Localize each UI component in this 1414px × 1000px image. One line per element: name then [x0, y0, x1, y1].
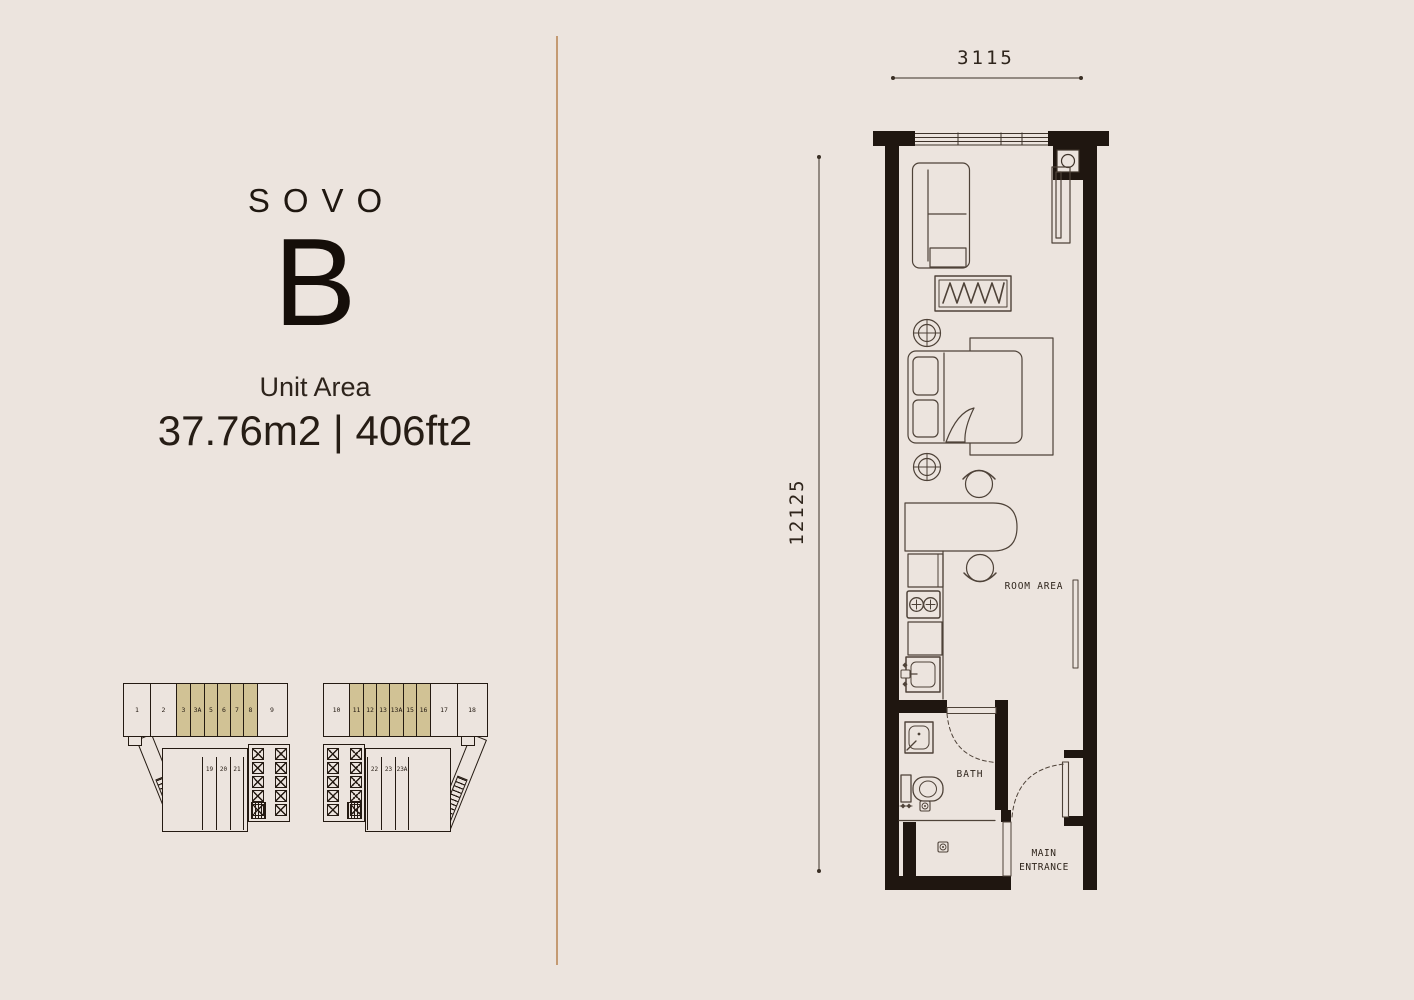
keyplan-unit-18: 18	[458, 684, 486, 736]
wall-recess-line	[1073, 580, 1078, 668]
unit-type-letter: B	[90, 226, 540, 340]
keyplan-unit-13: 13	[377, 684, 390, 736]
bath-sink	[905, 722, 933, 753]
floor-drain	[938, 842, 948, 852]
keyplan-tower-left: 1233A56789 192021	[120, 678, 305, 848]
keyplan-lower-units: 192021	[202, 757, 244, 830]
unit-floorplan: 3115 12125	[770, 30, 1130, 910]
chair	[964, 555, 996, 582]
vertical-divider	[556, 36, 558, 965]
lift-icon	[327, 748, 339, 760]
chair	[963, 471, 995, 498]
keyplan-unit-7: 7	[231, 684, 244, 736]
desk	[905, 503, 1017, 551]
shower-faucet-icon	[900, 804, 912, 809]
dimension-left	[817, 155, 821, 873]
keyplan-unit-3A: 3A	[191, 684, 205, 736]
keyplan-unit-1: 1	[124, 684, 151, 736]
keyplan-unit-20: 20	[216, 757, 230, 830]
lift-icon	[275, 762, 287, 774]
lift-icon	[350, 762, 362, 774]
dimension-top	[891, 76, 1083, 80]
keyplan-unit-12: 12	[364, 684, 377, 736]
corridor-wall-lining	[1003, 822, 1011, 876]
lift-icon	[350, 776, 362, 788]
unit-area-value: 37.76m2 | 406ft2	[90, 407, 540, 455]
lift-icon	[275, 804, 287, 816]
round-stool	[914, 454, 941, 481]
sofa	[913, 163, 970, 268]
keyplan-notch	[461, 736, 475, 746]
keyplan-core-stair-icon	[347, 802, 362, 819]
keyplan-unit-16: 16	[417, 684, 431, 736]
keyplan-unit-15: 15	[404, 684, 417, 736]
keyplan-unit-5: 5	[205, 684, 218, 736]
window	[915, 133, 1048, 146]
keyplan-unit-23: 23	[381, 757, 395, 830]
keyplan-unit-3: 3	[177, 684, 191, 736]
keyplan-unit-22: 22	[367, 757, 381, 830]
kitchen-counter	[908, 551, 943, 699]
lift-icon	[252, 748, 264, 760]
lift-icon	[275, 776, 287, 788]
room-area-label: ROOM AREA	[1005, 581, 1064, 592]
keyplan-unit-6: 6	[218, 684, 231, 736]
lift-icon	[350, 748, 362, 760]
lift-icon	[275, 748, 287, 760]
lift-icon	[252, 776, 264, 788]
keyplan-core-stair-icon	[251, 802, 266, 819]
lift-icon	[350, 790, 362, 802]
keyplan-unit-row: 1233A56789	[123, 683, 288, 737]
shoe-rack	[935, 276, 1011, 311]
lift-icon	[252, 790, 264, 802]
toilet	[901, 775, 943, 802]
keyplan-unit-19: 19	[202, 757, 216, 830]
lift-icon	[252, 762, 264, 774]
entrance-door	[1012, 762, 1069, 817]
keyplan-unit-row: 1011121313A15161718	[323, 683, 488, 737]
lift-icon	[275, 790, 287, 802]
keyplan-lift-core	[323, 744, 365, 822]
floor-drain	[920, 801, 930, 811]
keyplan-tower-right: 1011121313A15161718 222323A	[318, 678, 503, 848]
keyplan-unit-11: 11	[350, 684, 364, 736]
bath-label: BATH	[957, 769, 984, 780]
kitchen-sink	[901, 657, 940, 692]
keyplan-unit-8: 8	[244, 684, 258, 736]
keyplan-notch	[128, 736, 142, 746]
keyplan-lower-units: 222323A	[367, 757, 409, 830]
lift-icon	[327, 776, 339, 788]
title-block: SOVO B Unit Area 37.76m2 | 406ft2	[90, 0, 540, 455]
bath-door	[947, 708, 996, 763]
floorplan-page: SOVO B Unit Area 37.76m2 | 406ft2 1233A5…	[0, 0, 1414, 1000]
lift-icon	[327, 804, 339, 816]
round-stool	[914, 320, 941, 347]
unit-area-label: Unit Area	[90, 372, 540, 403]
keyplan-unit-2: 2	[151, 684, 177, 736]
keyplan-unit-13A: 13A	[390, 684, 404, 736]
lift-icon	[327, 762, 339, 774]
keyplan-unit-10: 10	[324, 684, 350, 736]
main-entrance-label: MAIN	[1032, 848, 1057, 859]
keyplan-lift-core	[248, 744, 290, 822]
keyplan-unit-17: 17	[431, 684, 458, 736]
keyplan-unit-9: 9	[258, 684, 286, 736]
bed	[908, 351, 1022, 443]
lift-icon	[327, 790, 339, 802]
top-dim-label: 3115	[957, 47, 1015, 69]
heater-column	[1057, 150, 1079, 172]
main-entrance-label: ENTRANCE	[1019, 862, 1069, 873]
keyplan-unit-21: 21	[230, 757, 244, 830]
keyplan-unit-23A: 23A	[395, 757, 409, 830]
stove	[907, 591, 940, 618]
left-dim-label: 12125	[786, 478, 808, 545]
